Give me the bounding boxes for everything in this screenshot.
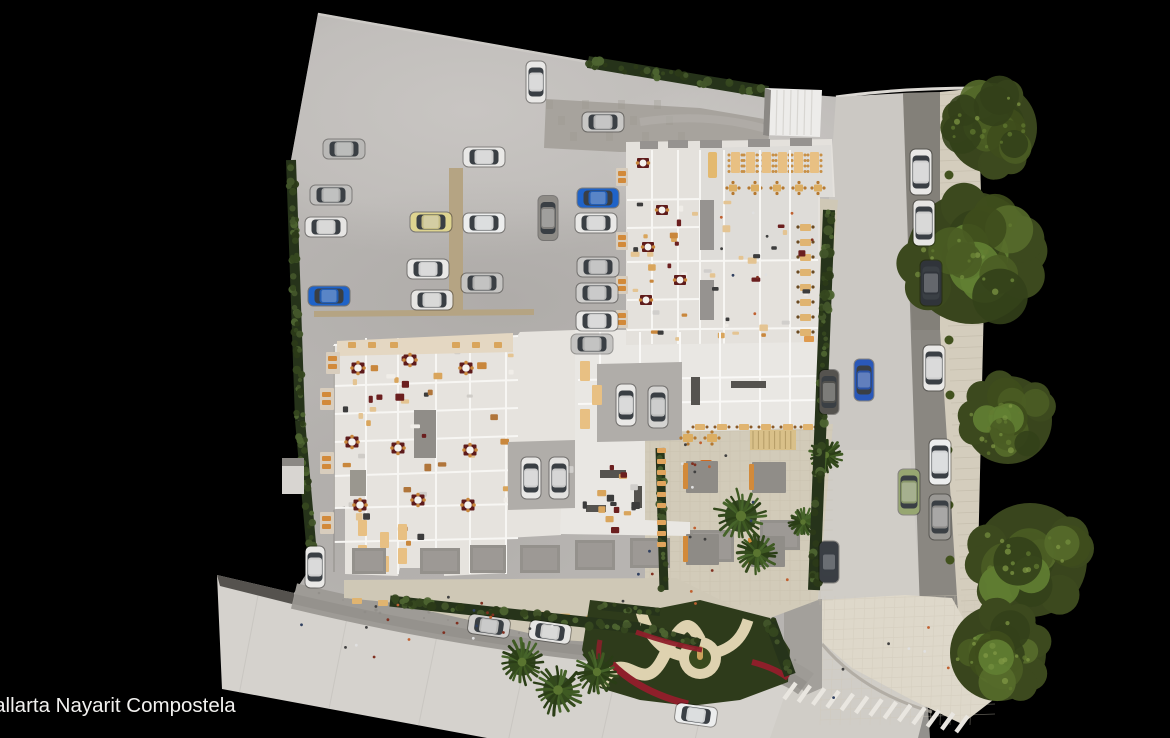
svg-text:Vallarta Nayarit Compostela: Vallarta Nayarit Compostela [0, 694, 236, 717]
